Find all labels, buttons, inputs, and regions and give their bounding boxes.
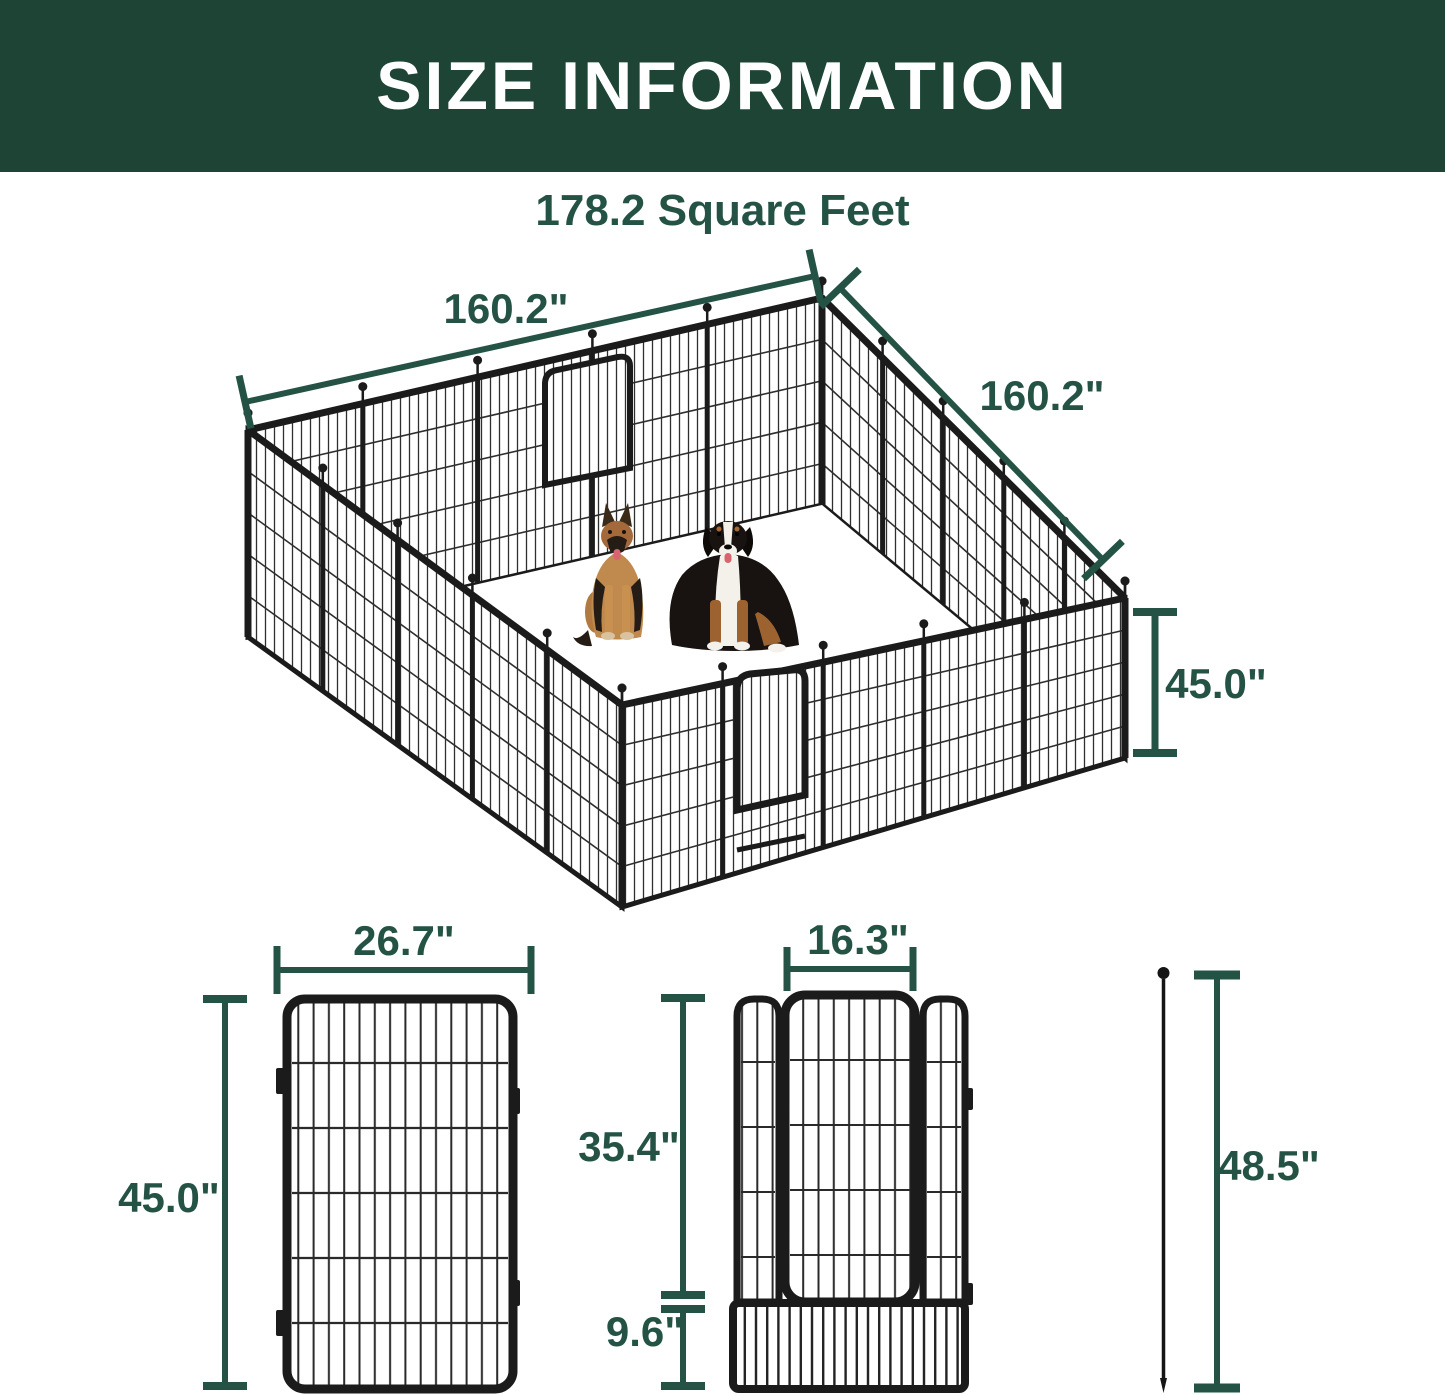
back-gate-door: [545, 357, 630, 485]
ground-stake-diagram: [1158, 967, 1170, 1393]
single-panel-diagram: [276, 999, 520, 1389]
gate-upper-height-dimension-line: [661, 998, 705, 1295]
playpen-scene: [0, 0, 1445, 1395]
pen-height-dimension-line: [1133, 612, 1177, 753]
single-panel-height-dimension-line: [203, 999, 247, 1386]
gate-lower-height-dimension-line: [661, 1309, 705, 1386]
front-gate-door: [737, 670, 805, 810]
stake-height-dimension-line: [1194, 975, 1240, 1388]
gate-door-width-dimension-line: [787, 947, 913, 991]
gate-panel-diagram: [733, 995, 973, 1389]
size-infographic: SIZE INFORMATION 178.2 Square Feet: [0, 0, 1445, 1395]
single-panel-width-dimension-line: [277, 946, 531, 994]
